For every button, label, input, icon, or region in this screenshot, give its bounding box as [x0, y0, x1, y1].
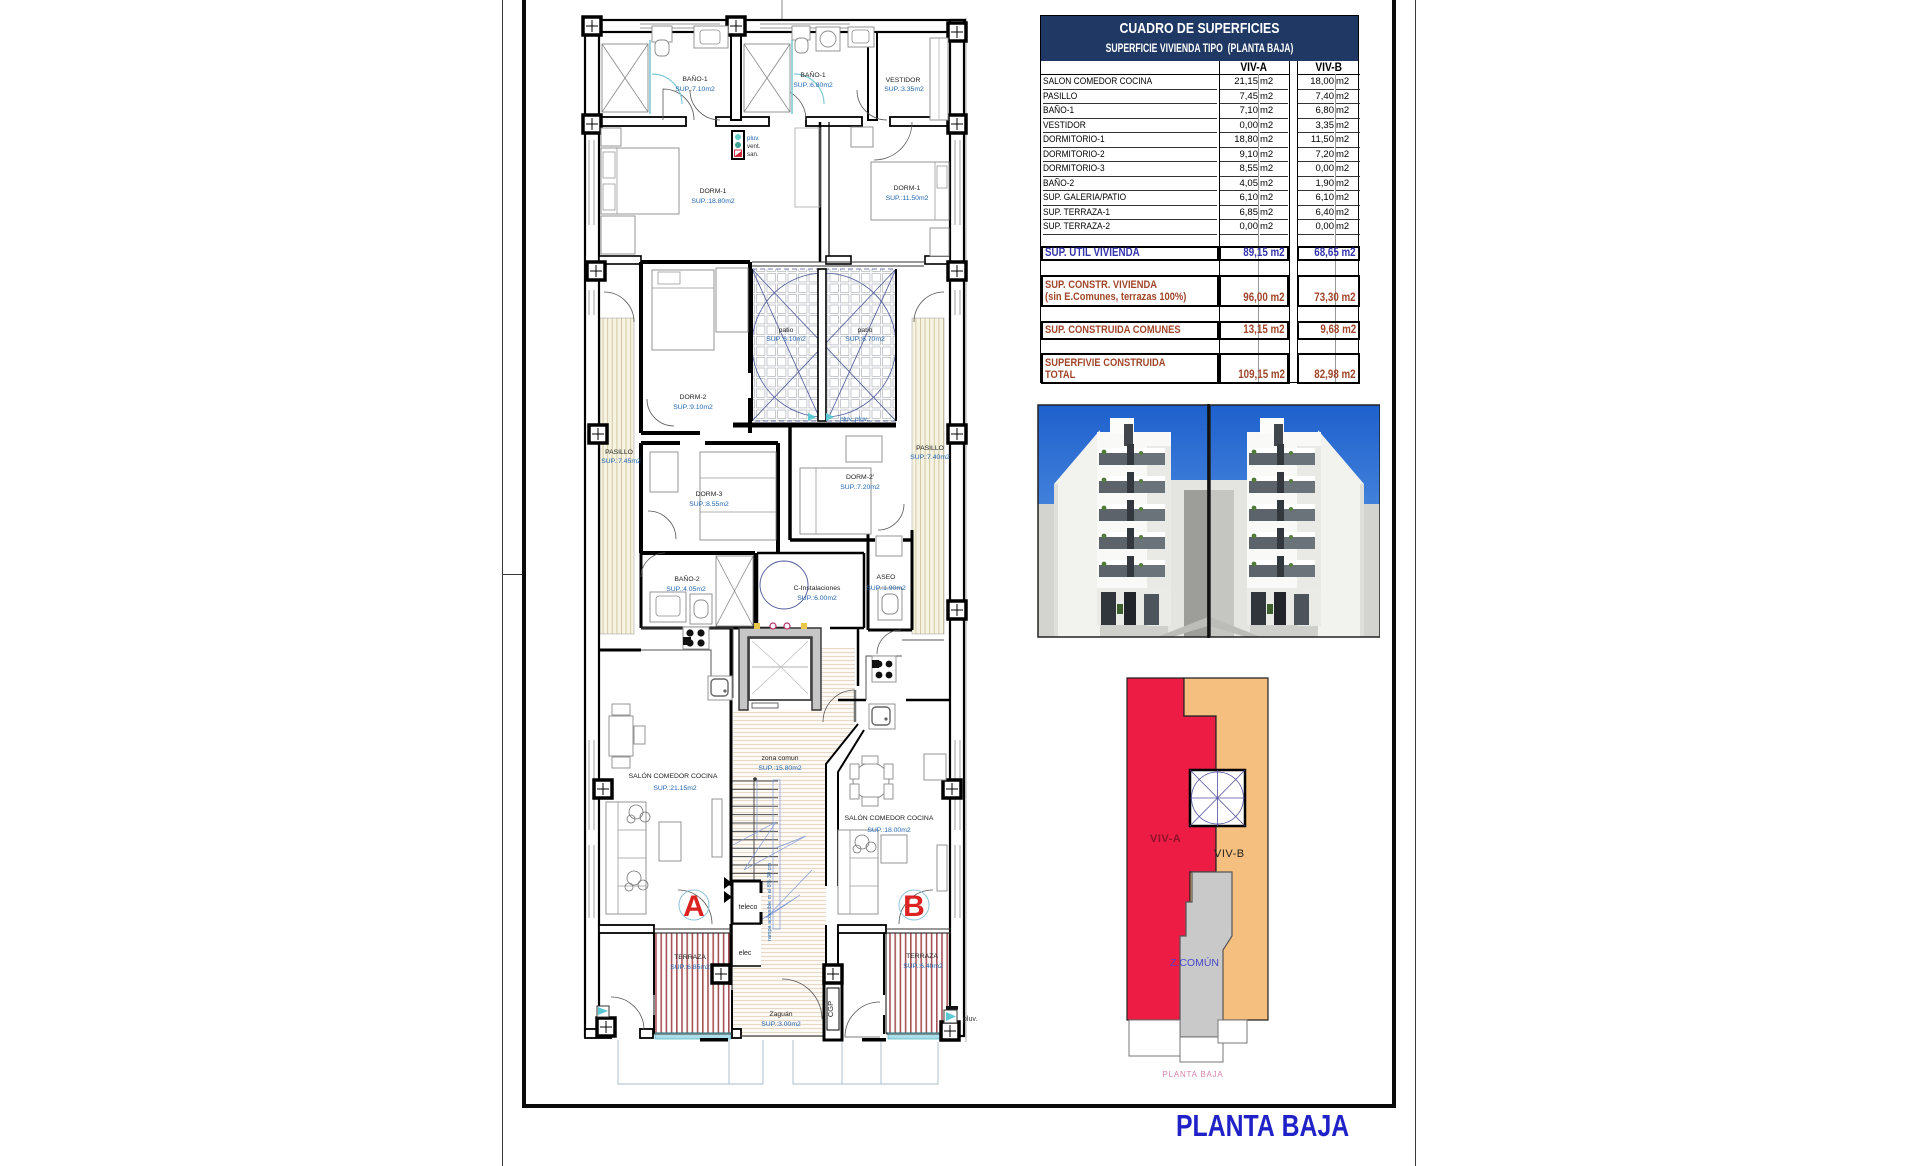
svg-text:vent.: vent. — [747, 143, 761, 150]
svg-text:SUP.:18.80m2: SUP.:18.80m2 — [691, 198, 735, 205]
svg-text:TERRAZA: TERRAZA — [906, 953, 938, 960]
svg-text:SUP.:7.45m2: SUP.:7.45m2 — [601, 458, 641, 465]
svg-text:pluv.: pluv. — [747, 135, 760, 142]
svg-text:DORM-2: DORM-2 — [680, 394, 707, 401]
svg-text:pluv.: pluv. — [963, 1016, 977, 1023]
svg-text:SUP.:6.40m2: SUP.:6.40m2 — [903, 963, 943, 970]
svg-text:pluv. pluv.: pluv. pluv. — [840, 416, 868, 423]
svg-text:VESTIDOR: VESTIDOR — [886, 77, 921, 84]
svg-text:SUP.:8.55m2: SUP.:8.55m2 — [689, 501, 729, 508]
svg-text:SUP.:7.10m2: SUP.:7.10m2 — [675, 86, 715, 93]
svg-text:SUP.:6.80m2: SUP.:6.80m2 — [793, 82, 833, 89]
svg-text:BAÑO-1: BAÑO-1 — [800, 70, 826, 79]
svg-text:SUP.:3.35m2: SUP.:3.35m2 — [884, 86, 924, 93]
svg-text:zona comun: zona comun — [761, 755, 798, 762]
svg-text:SUP.:7.40m2: SUP.:7.40m2 — [910, 454, 950, 461]
svg-text:ASEO: ASEO — [877, 574, 896, 581]
svg-text:DORM-2': DORM-2' — [846, 474, 874, 481]
svg-text:VIV-B: VIV-B — [1214, 848, 1245, 860]
svg-text:SUP.:15.80m2: SUP.:15.80m2 — [758, 765, 802, 772]
svg-text:A: A — [683, 890, 705, 923]
svg-text:SALÓN COMEDOR COCINA: SALÓN COMEDOR COCINA — [845, 813, 934, 822]
svg-text:DORM-1: DORM-1 — [700, 188, 727, 195]
svg-text:DORM-3: DORM-3 — [696, 491, 723, 498]
svg-text:SUP.:11.50m2: SUP.:11.50m2 — [886, 195, 929, 202]
svg-text:SUP.:6.70m2: SUP.:6.70m2 — [845, 336, 885, 343]
svg-text:PLANTA BAJA: PLANTA BAJA — [1162, 1070, 1223, 1079]
svg-text:BAÑO-1: BAÑO-1 — [682, 74, 708, 83]
svg-text:SALÓN COMEDOR COCINA: SALÓN COMEDOR COCINA — [629, 771, 718, 780]
svg-text:teleco: teleco — [739, 904, 758, 911]
svg-text:SUP.:3.00m2: SUP.:3.00m2 — [761, 1021, 801, 1028]
svg-text:patio: patio — [779, 327, 794, 334]
svg-text:C-Instalaciones: C-Instalaciones — [794, 585, 841, 592]
svg-text:Z.COMÚN: Z.COMÚN — [1170, 956, 1219, 969]
svg-text:BAÑO-2: BAÑO-2 — [674, 574, 700, 583]
svg-text:TERRAZA: TERRAZA — [674, 954, 706, 961]
svg-text:SUP.:9.10m2: SUP.:9.10m2 — [673, 404, 713, 411]
svg-text:B: B — [903, 890, 925, 923]
svg-text:SUP.:7.20m2: SUP.:7.20m2 — [840, 484, 880, 491]
svg-text:PASILLO: PASILLO — [916, 445, 944, 452]
svg-text:DORM-1: DORM-1 — [894, 185, 921, 192]
svg-text:SUP.:4.05m2: SUP.:4.05m2 — [666, 586, 706, 593]
svg-text:SUP.:6.00m2: SUP.:6.00m2 — [797, 595, 837, 602]
svg-text:SUP.:6.85m2: SUP.:6.85m2 — [670, 964, 710, 971]
svg-text:Zaguán: Zaguán — [769, 1011, 792, 1018]
svg-text:SUP.:18.00m2: SUP.:18.00m2 — [867, 827, 911, 834]
svg-text:VIV-A: VIV-A — [1150, 833, 1181, 845]
svg-text:CGP: CGP — [826, 1001, 835, 1017]
svg-text:SUP.:6.10m2: SUP.:6.10m2 — [766, 336, 806, 343]
svg-text:elec: elec — [739, 950, 752, 957]
svg-text:SUP.:1.90m2: SUP.:1.90m2 — [866, 585, 906, 592]
svg-text:SUP.:21.15m2: SUP.:21.15m2 — [653, 785, 697, 792]
svg-text:san.: san. — [747, 151, 759, 158]
svg-text:PASILLO: PASILLO — [605, 449, 633, 456]
svg-text:rampa accesible m al 8% 30 cm: rampa accesible m al 8% 30 cm — [767, 863, 773, 941]
svg-text:patio: patio — [858, 327, 873, 334]
